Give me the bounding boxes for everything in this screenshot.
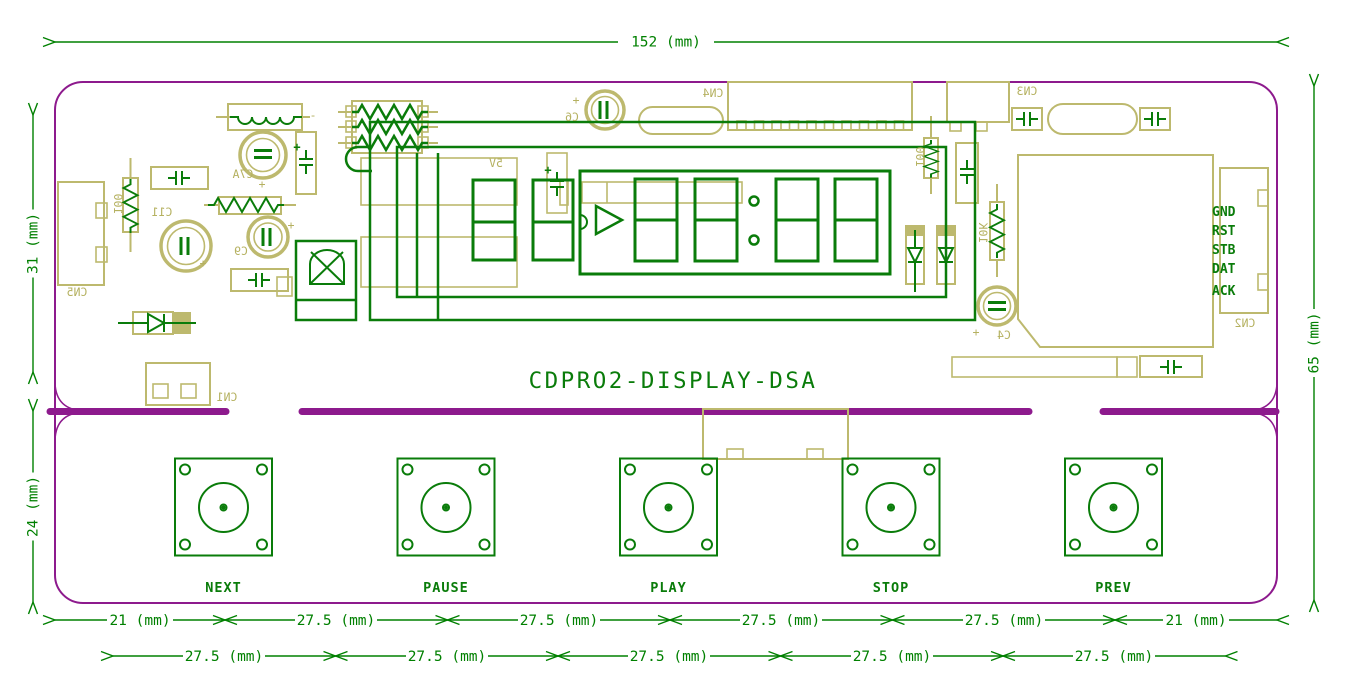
board-outline: [55, 82, 1277, 603]
mouse-bite-arc: [1248, 412, 1277, 440]
ref-c9: C9: [234, 244, 248, 258]
svg-text:27.5 (mm): 27.5 (mm): [742, 613, 821, 629]
button-footprint-stop[interactable]: [843, 459, 940, 556]
svg-text:27.5 (mm): 27.5 (mm): [630, 649, 709, 665]
top-silkscreen: [118, 101, 1182, 374]
footprint-cn5[interactable]: [58, 182, 107, 285]
resistor-zigzag: [990, 204, 1004, 258]
diode-symbol: [908, 230, 922, 292]
mouse-bite-arc: [55, 412, 84, 440]
button-footprint-next[interactable]: [175, 459, 272, 556]
svg-text:27.5 (mm): 27.5 (mm): [185, 649, 264, 665]
capacitor-symbol: [248, 273, 270, 287]
svg-text:65 (mm): 65 (mm): [1307, 312, 1323, 373]
colon-dot: [750, 197, 759, 206]
mouse-bite-arc: [55, 383, 84, 411]
dim-bottom-row2: 27.5 (mm) 27.5 (mm) 27.5 (mm) 27.5 (mm) …: [113, 649, 1226, 666]
footprint-fragment: [277, 277, 292, 296]
footprint-display-pins: [560, 180, 742, 205]
footprint-cap1[interactable]: [151, 167, 208, 189]
svg-text:27.5 (mm): 27.5 (mm): [1075, 649, 1154, 665]
ref-c7a-plus: +: [258, 177, 265, 191]
svg-text:31 (mm): 31 (mm): [26, 213, 42, 274]
colon-dot: [750, 236, 759, 245]
button-footprint-play[interactable]: [620, 459, 717, 556]
capacitor-symbol: [1016, 112, 1038, 126]
mouse-bite-arc: [1248, 383, 1277, 411]
footprint-bar: [952, 357, 1117, 377]
dim-bottom-row1: 21 (mm) 27.5 (mm) 27.5 (mm) 27.5 (mm) 27…: [55, 613, 1277, 630]
footprint-cn1[interactable]: [146, 363, 210, 405]
svg-text:152 (mm): 152 (mm): [631, 35, 701, 51]
capacitor-symbol: [1160, 360, 1182, 374]
ref-c11-plus: +: [199, 256, 206, 270]
dimension-annotations: 152 (mm) 31 (mm) 24 (mm) 65 (mm): [26, 35, 1323, 666]
signal-stb: STB: [1212, 243, 1236, 258]
ref-cn2: CN2: [1235, 316, 1256, 330]
capacitor-symbol: [1144, 112, 1166, 126]
cap-plus-mark: +: [544, 163, 551, 177]
ref-cn5: CN5: [67, 285, 88, 299]
ref-c6: C6: [565, 110, 579, 124]
key-buttons: NEXT PAUSE PLAY STOP PREV: [175, 459, 1162, 597]
ref-c11: C11: [152, 205, 173, 219]
resistor-zigzag: [352, 105, 428, 119]
cap-plus-mark: +: [293, 140, 300, 154]
ref-c6-plus: +: [572, 93, 579, 107]
dim-left-upper: 31 (mm): [26, 115, 42, 372]
footprint-ir-receiver[interactable]: [296, 241, 356, 320]
signal-labels: GND RST STB DAT ACK: [1212, 205, 1236, 299]
footprint-main-chip[interactable]: [1018, 155, 1213, 347]
footprint-c9[interactable]: [248, 217, 288, 257]
button-label-pause: PAUSE: [423, 580, 469, 596]
footprint-c6[interactable]: [586, 91, 624, 129]
svg-text:27.5 (mm): 27.5 (mm): [520, 613, 599, 629]
footprint-capv-mid[interactable]: [547, 153, 567, 213]
ref-cn3: CN3: [1017, 84, 1038, 98]
button-footprint-prev[interactable]: [1065, 459, 1162, 556]
footprint-cap-bottom[interactable]: [1140, 356, 1202, 377]
svg-text:27.5 (mm): 27.5 (mm): [408, 649, 487, 665]
svg-text:24 (mm): 24 (mm): [26, 476, 42, 537]
reference-designators: CN5 100 C11 + C7A + - C9 + CN1 5V + C6 C…: [67, 84, 1256, 404]
ref-r10k: 10K: [976, 223, 990, 244]
svg-text:27.5 (mm): 27.5 (mm): [965, 613, 1044, 629]
footprint-cn3[interactable]: [947, 82, 1009, 131]
ref-cn1: CN1: [217, 390, 238, 404]
ref-c4-plus: +: [972, 325, 979, 339]
button-label-prev: PREV: [1095, 580, 1132, 596]
footprint-display[interactable]: [580, 171, 890, 274]
inductor-coil: [230, 117, 302, 124]
capacitor-symbol: [299, 150, 313, 174]
ref-cn4: CN4: [703, 86, 724, 100]
ref-r100-left: 100: [111, 194, 125, 215]
play-triangle-icon: [596, 206, 622, 234]
capacitor-symbol: [550, 172, 564, 196]
footprint-crystal[interactable]: [1048, 104, 1137, 134]
pcb-cad-view: NEXT PAUSE PLAY STOP PREV CDPRO2-DISPLAY…: [0, 0, 1364, 700]
cap-polarity-mark: [988, 303, 1006, 310]
svg-text:27.5 (mm): 27.5 (mm): [853, 649, 932, 665]
footprint-cap2[interactable]: [231, 269, 288, 291]
dim-top: 152 (mm): [55, 35, 1277, 51]
signal-rst: RST: [1212, 224, 1236, 239]
cap-polarity-mark: [600, 101, 607, 119]
button-label-next: NEXT: [205, 580, 242, 596]
svg-text:21 (mm): 21 (mm): [109, 613, 170, 629]
footprint-straddle-connector[interactable]: [703, 409, 848, 459]
board-title: CDPRO2-DISPLAY-DSA: [529, 368, 818, 394]
button-label-play: PLAY: [650, 580, 687, 596]
cap-polarity-mark: [254, 151, 272, 158]
signal-gnd: GND: [1212, 205, 1236, 220]
footprint-oval-mid[interactable]: [639, 107, 723, 134]
dim-right: 65 (mm): [1307, 86, 1323, 600]
ref-r100-right: 100: [913, 147, 927, 168]
capacitor-symbol: [960, 160, 974, 184]
ref-5v: 5V: [489, 156, 503, 170]
cap-polarity-mark: [263, 228, 270, 246]
ref-c7a: C7A: [233, 167, 254, 181]
footprint-c4[interactable]: [978, 287, 1016, 325]
button-label-stop: STOP: [873, 580, 910, 596]
svg-text:27.5 (mm): 27.5 (mm): [297, 613, 376, 629]
ref-c4: C4: [997, 328, 1011, 342]
pcb-layout-drawing: NEXT PAUSE PLAY STOP PREV CDPRO2-DISPLAY…: [0, 0, 1364, 700]
cap-polarity-mark: [181, 237, 188, 255]
svg-text:21 (mm): 21 (mm): [1165, 613, 1226, 629]
capacitor-symbol: [168, 171, 190, 185]
footprint-bar-end: [1117, 357, 1137, 377]
ref-c9-plus: +: [287, 218, 294, 232]
signal-dat: DAT: [1212, 262, 1236, 277]
button-footprint-pause[interactable]: [398, 459, 495, 556]
signal-ack: ACK: [1212, 284, 1236, 299]
dim-left-lower: 24 (mm): [26, 411, 42, 602]
digit-box-1: [473, 180, 515, 260]
ref-inductor-minus: -: [310, 108, 317, 122]
